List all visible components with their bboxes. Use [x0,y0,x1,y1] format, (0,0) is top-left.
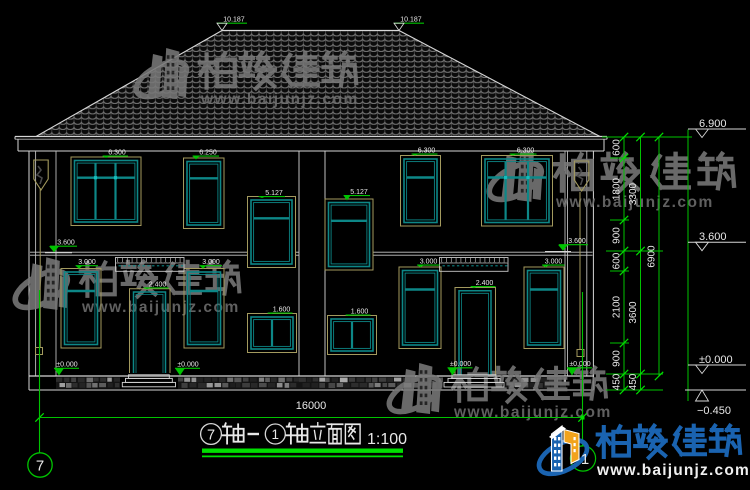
svg-text:1.600: 1.600 [351,309,369,316]
svg-text:450: 450 [612,373,623,390]
svg-text:6.250: 6.250 [199,150,217,157]
svg-text:3600: 3600 [628,301,639,324]
svg-text:±0.000: ±0.000 [450,361,471,368]
svg-text:1.600: 1.600 [273,307,291,314]
svg-text:www.baijunjz.com: www.baijunjz.com [453,404,612,421]
svg-text:600: 600 [612,139,623,156]
svg-text:10.187: 10.187 [400,17,422,24]
svg-text:2.400: 2.400 [476,280,494,287]
svg-text:1800: 1800 [612,177,623,200]
svg-text:±0.000: ±0.000 [699,354,733,366]
svg-text:16000: 16000 [296,400,327,412]
svg-text:900: 900 [612,350,623,367]
svg-text:±0.000: ±0.000 [569,361,590,368]
svg-text:3.000: 3.000 [78,259,96,266]
svg-text:3.600: 3.600 [568,238,586,245]
svg-text:6.300: 6.300 [108,150,126,157]
svg-text:1: 1 [581,451,589,468]
svg-text:10.187: 10.187 [223,17,245,24]
svg-text:6.900: 6.900 [699,118,727,130]
svg-text:1: 1 [272,427,280,442]
svg-text:2.400: 2.400 [149,281,167,288]
svg-text:www.baijunjz.com: www.baijunjz.com [81,299,240,316]
svg-text:3.000: 3.000 [420,259,438,266]
svg-text:6.300: 6.300 [418,148,436,155]
svg-text:1:100: 1:100 [367,431,407,448]
svg-text:−0.450: −0.450 [697,405,731,417]
svg-text:±0.000: ±0.000 [177,362,198,369]
svg-text:2100: 2100 [612,295,623,318]
svg-text:900: 900 [612,227,623,244]
svg-text:3.000: 3.000 [202,259,220,266]
svg-text:3.000: 3.000 [545,259,563,266]
svg-text:5.127: 5.127 [350,189,368,196]
svg-text:3300: 3300 [628,182,639,205]
svg-text:3.600: 3.600 [57,240,75,247]
svg-text:www.baijunjz.com: www.baijunjz.com [596,462,750,479]
svg-text:www.baijunjz.com: www.baijunjz.com [200,91,359,108]
svg-text:3.600: 3.600 [699,231,727,243]
svg-text:±0.000: ±0.000 [56,362,77,369]
svg-text:600: 600 [612,252,623,269]
svg-text:6900: 6900 [647,245,658,268]
svg-text:7: 7 [36,458,44,475]
svg-text:7: 7 [207,428,215,444]
svg-text:5.127: 5.127 [265,190,283,197]
svg-text:450: 450 [628,373,639,390]
svg-text:6.300: 6.300 [517,148,535,155]
